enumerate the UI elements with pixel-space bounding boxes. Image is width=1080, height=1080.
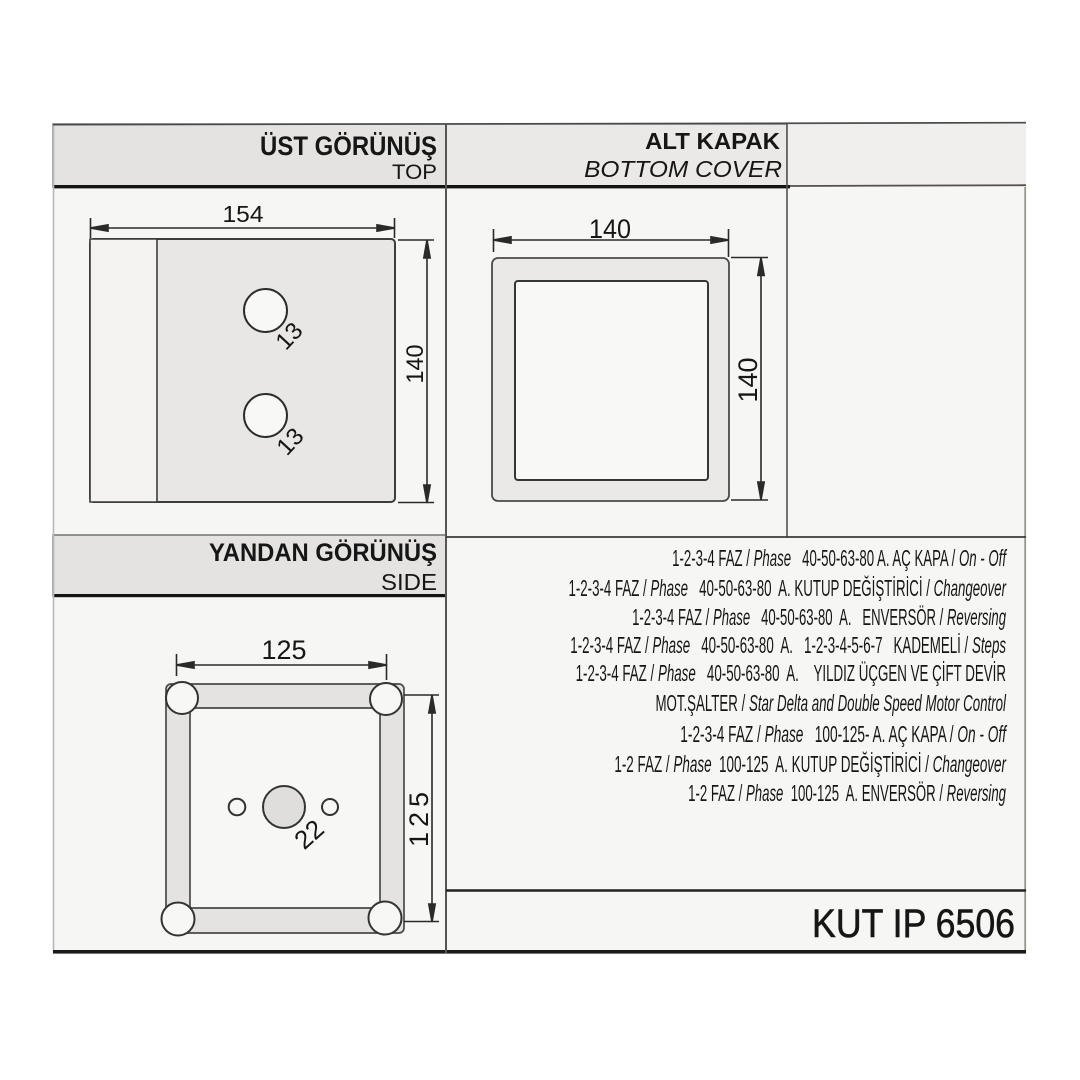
svg-text:1-2-3-4 FAZ / Phase 40-50-63: 1-2-3-4 FAZ / Phase 40-50-63-80 A. ENVER…	[632, 604, 1006, 630]
svg-text:1-2 FAZ / Phase 100-125 A. K: 1-2 FAZ / Phase 100-125 A. KUTUP DEĞİŞTİ…	[614, 751, 1006, 777]
svg-text:MOT.ŞALTER / Star Delta and Do: MOT.ŞALTER / Star Delta and Double Speed…	[655, 690, 1006, 716]
svg-text:140: 140	[733, 358, 763, 403]
svg-text:KUT IP 6506: KUT IP 6506	[812, 902, 1015, 946]
svg-text:154: 154	[223, 202, 264, 228]
svg-text:125: 125	[262, 635, 307, 665]
svg-text:ÜST GÖRÜNÜŞ: ÜST GÖRÜNÜŞ	[260, 131, 437, 162]
svg-text:1-2-3-4 FAZ / Phase 40-50-63: 1-2-3-4 FAZ / Phase 40-50-63-80 A. AÇ KA…	[672, 545, 1007, 571]
svg-text:SIDE: SIDE	[381, 569, 437, 594]
svg-text:140: 140	[589, 213, 631, 244]
svg-text:140: 140	[403, 345, 429, 384]
svg-text:1-2-3-4 FAZ / Phase 100-125-: 1-2-3-4 FAZ / Phase 100-125- A. AÇ KAPA …	[680, 723, 1007, 749]
svg-text:ALT KAPAK: ALT KAPAK	[645, 128, 780, 153]
svg-text:1-2 FAZ / Phase 100-125 A. E: 1-2 FAZ / Phase 100-125 A. ENVERSÖR / Re…	[688, 780, 1006, 806]
svg-text:BOTTOM COVER: BOTTOM COVER	[584, 158, 782, 183]
svg-text:1-2-3-4 FAZ / Phase 40-50-63: 1-2-3-4 FAZ / Phase 40-50-63-80 A. 1-2-3…	[570, 632, 1006, 658]
svg-text:1-2-3-4 FAZ / Phase 40-50-63: 1-2-3-4 FAZ / Phase 40-50-63-80 A. KUTUP…	[568, 575, 1006, 601]
svg-text:1-2-3-4 FAZ / Phase 40-50-63: 1-2-3-4 FAZ / Phase 40-50-63-80 A. YILDI…	[576, 660, 1006, 686]
svg-text:TOP: TOP	[392, 160, 437, 183]
svg-text:YANDAN GÖRÜNÜŞ: YANDAN GÖRÜNÜŞ	[209, 539, 437, 567]
svg-text:125: 125	[404, 787, 434, 847]
